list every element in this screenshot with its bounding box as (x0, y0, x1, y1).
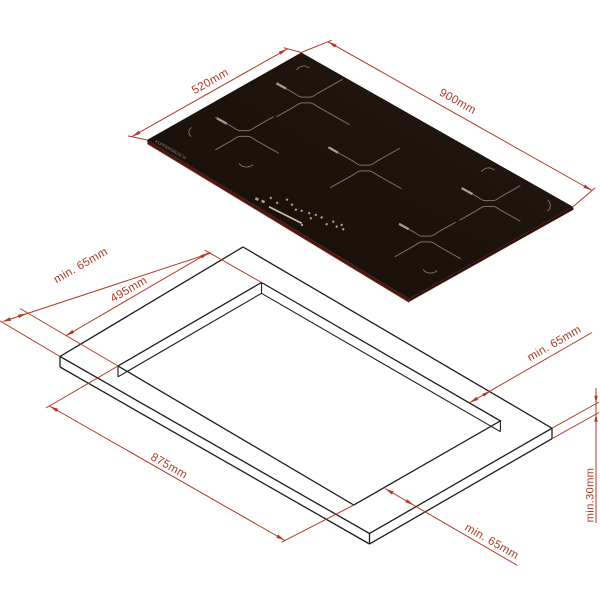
svg-text:min.30mm: min.30mm (585, 468, 597, 523)
